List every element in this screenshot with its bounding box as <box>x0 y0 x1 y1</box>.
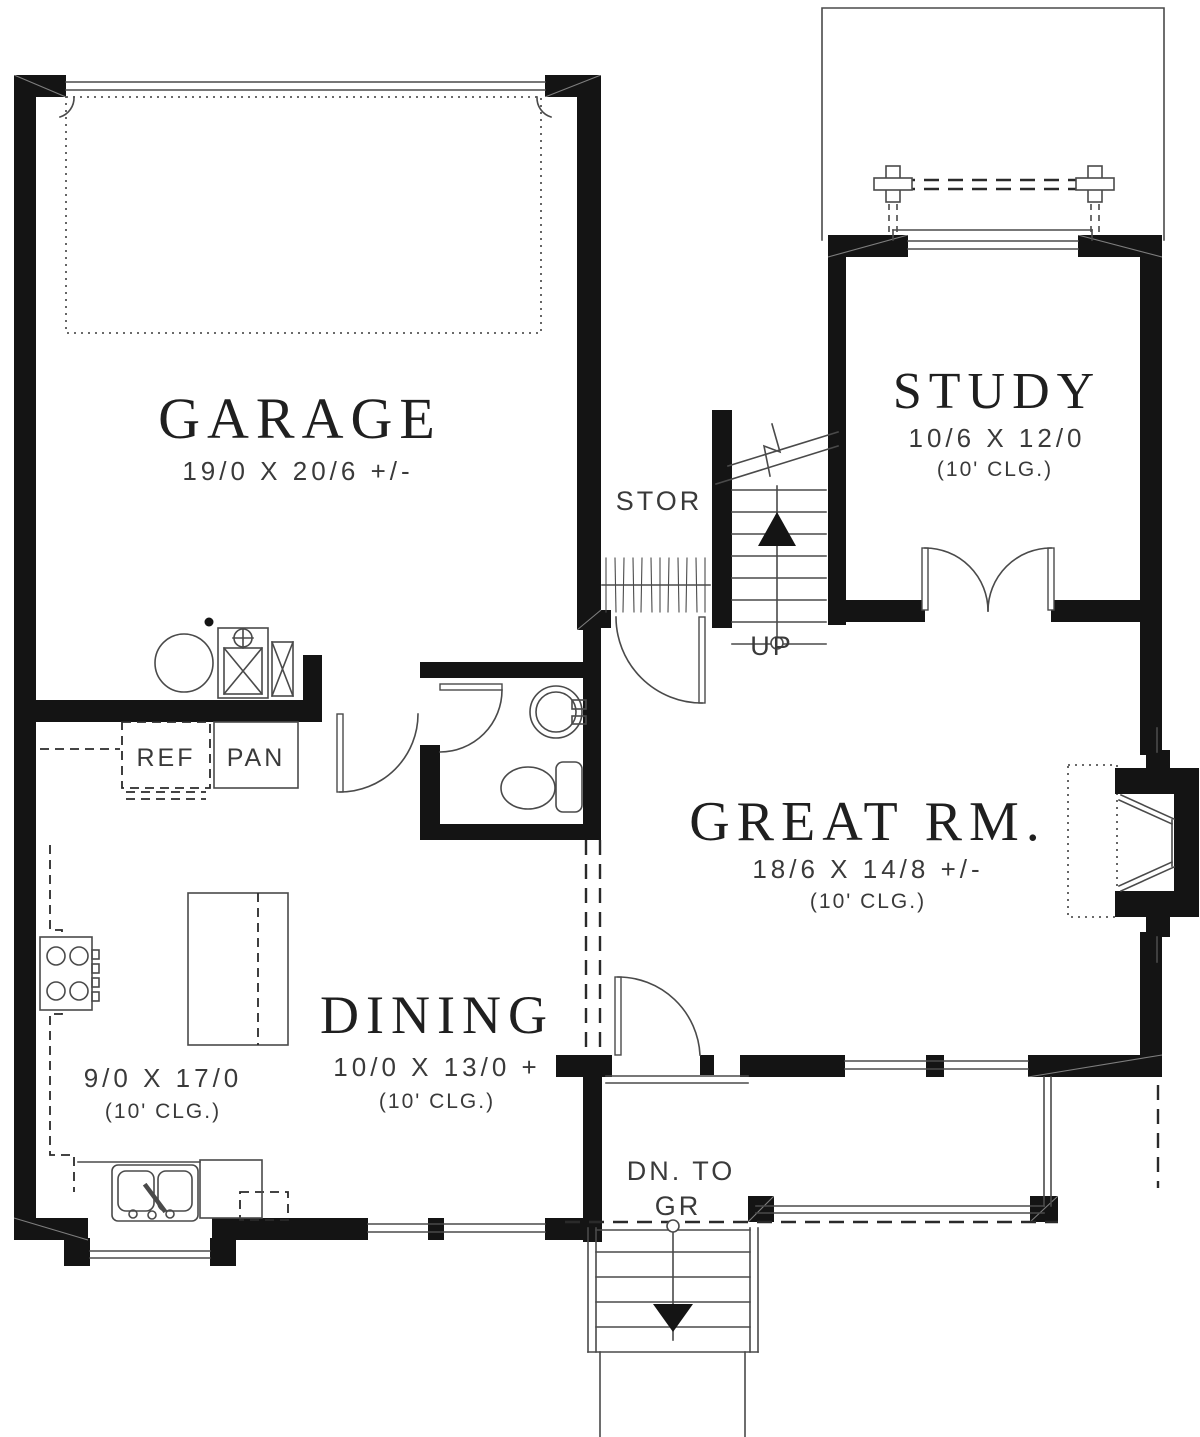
stairs-down <box>588 1220 758 1437</box>
study-dims: 10/6 X 12/0 <box>909 423 1086 453</box>
floor-plan: GARAGE 19/0 X 20/6 +/- STUDY 10/6 X 12/0… <box>0 0 1200 1437</box>
fireplace <box>1068 728 1199 962</box>
stairs-up <box>716 424 838 649</box>
great-room-ceiling: (10' CLG.) <box>810 890 926 913</box>
garage-door-track-outline <box>66 97 541 333</box>
furnace <box>218 628 268 698</box>
kitchen-dims: 9/0 X 17/0 <box>84 1063 243 1093</box>
rear-porch <box>822 8 1164 240</box>
kitchen-island <box>188 893 288 1045</box>
stairs-down-label-line1: DN. TO <box>627 1156 736 1186</box>
great-room-label: GREAT RM. <box>689 791 1047 853</box>
utility-unit <box>272 642 293 696</box>
dishwasher <box>200 1160 262 1218</box>
great-room-dims: 18/6 X 14/8 +/- <box>752 854 983 884</box>
front-door <box>606 977 748 1083</box>
stairs-up-arrow <box>758 512 796 546</box>
kitchen-bay-window <box>90 1251 210 1258</box>
powder-room-door <box>440 684 502 752</box>
floor-plan-drawing: GARAGE 19/0 X 20/6 +/- STUDY 10/6 X 12/0… <box>0 0 1200 1437</box>
dining-label: DINING <box>320 985 554 1045</box>
dining-ceiling: (10' CLG.) <box>379 1090 495 1113</box>
study-double-doors <box>922 548 1054 611</box>
dining-dims: 10/0 X 13/0 + <box>333 1052 540 1082</box>
porch-post-symbol <box>1076 166 1114 238</box>
stairs-up-label: UP <box>750 631 794 661</box>
pedestal-sink <box>530 686 586 738</box>
study-label: STUDY <box>893 363 1101 420</box>
kitchen-sink <box>112 1165 198 1221</box>
refrigerator-label: REF <box>137 744 196 772</box>
study-ceiling: (10' CLG.) <box>937 458 1053 481</box>
dining-window <box>368 1224 545 1232</box>
kitchen-ceiling: (10' CLG.) <box>105 1100 221 1123</box>
toilet <box>501 762 582 812</box>
storage-label: STOR <box>616 486 703 516</box>
garage-door <box>60 82 551 117</box>
storage-closet-hatch <box>602 558 710 612</box>
pantry-label: PAN <box>227 744 286 772</box>
stairs-down-label-line2: GR <box>655 1191 702 1221</box>
hearth-outline <box>1068 765 1117 917</box>
garage-label: GARAGE <box>158 386 442 451</box>
hall-door <box>616 617 705 703</box>
garage-dims: 19/0 X 20/6 +/- <box>182 456 413 486</box>
water-heater <box>155 618 214 693</box>
garage-entry-door <box>337 714 418 792</box>
porch-post-symbol <box>874 166 912 238</box>
range-stove <box>40 937 99 1010</box>
study-window <box>893 230 1092 249</box>
cased-opening-dashes <box>586 840 600 1055</box>
